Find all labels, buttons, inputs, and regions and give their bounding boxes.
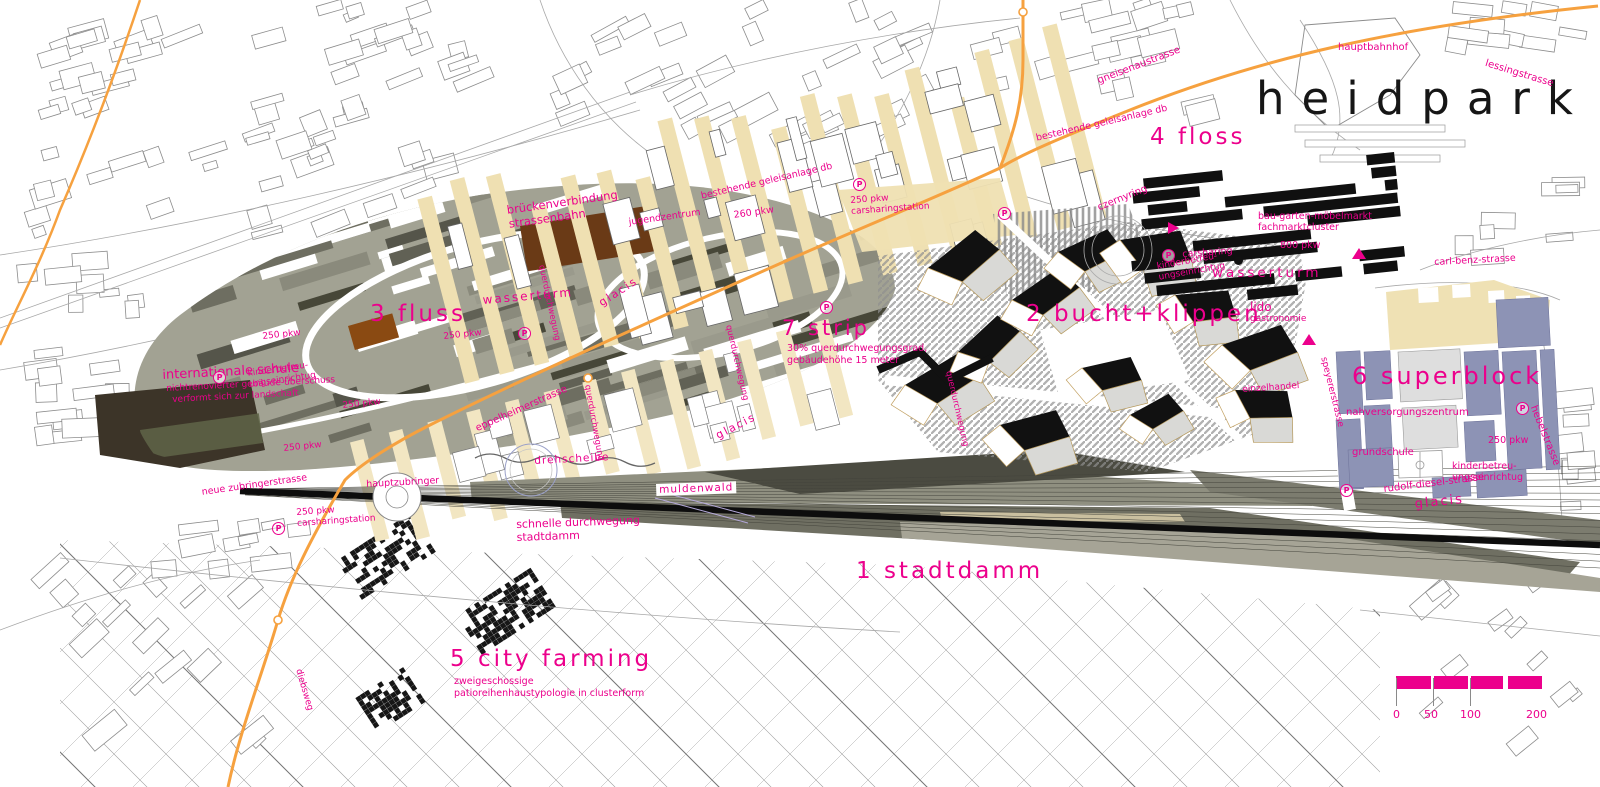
- zone-label-cityfarming: 5 city farming: [450, 646, 652, 673]
- place-label-wasserturm-right: wasserturm: [1212, 266, 1322, 282]
- baugarten-line2: fachmarktcluster: [1258, 222, 1372, 233]
- parking-icon-1: P: [213, 371, 226, 384]
- marker-triangle-1: [1168, 222, 1179, 234]
- place-label-lido: lido: [1250, 300, 1272, 314]
- zone-label-superblock: 6 superblock: [1352, 362, 1542, 390]
- heidpark-masterplan: heidpark 1 stadtdamm 2 bucht+klippen 3 f…: [0, 0, 1600, 787]
- place-label-hauptbahnhof: hauptbahnhof: [1338, 42, 1408, 54]
- scalebar-segment: [1508, 676, 1542, 689]
- place-label-nahversorgungszentrum: nahversorgungszentrum: [1346, 407, 1469, 419]
- scalebar-label-50: 50: [1424, 708, 1438, 721]
- parking-icon-carsharing: P: [1162, 249, 1175, 262]
- parking-label-800pkw: 800 pkw: [1280, 240, 1320, 251]
- scalebar: 0 50 100 200: [1396, 676, 1546, 722]
- cityfarming-sub2: patioreihenhaustypologie in clusterform: [454, 688, 644, 699]
- place-label-gastronomie: gastronomie: [1250, 314, 1306, 325]
- scalebar-label-0: 0: [1393, 708, 1400, 721]
- scalebar-segment: [1434, 676, 1468, 689]
- note-schnelle-durchwegung: schnelle durchwegungstadtdamm: [516, 515, 641, 545]
- scalebar-label-200: 200: [1526, 708, 1547, 721]
- marker-triangle-3: [1352, 248, 1366, 259]
- kinderbetreuung-line1: kinderbetreu-: [1452, 461, 1517, 472]
- parking-icon-5: P: [998, 207, 1011, 220]
- scalebar-segment: [1471, 676, 1503, 689]
- parking-icon-2: P: [518, 327, 531, 340]
- place-label-grundschule: grundschule: [1352, 447, 1414, 459]
- wasserturm-dot: [1234, 256, 1243, 265]
- scalebar-label-100: 100: [1460, 708, 1481, 721]
- scalebar-segment: [1396, 676, 1431, 689]
- scalebar-tick: [1470, 678, 1471, 706]
- marker-triangle-2: [1302, 334, 1316, 345]
- place-label-kinderbetreuung-superblock: kinderbetreu-ungseinrichtug: [1452, 461, 1523, 483]
- scalebar-tick: [1396, 678, 1397, 706]
- parking-icon-4: P: [820, 301, 833, 314]
- cityfarming-sub1: zweigeschossige: [454, 676, 534, 687]
- parking-icon-3: P: [853, 178, 866, 191]
- scalebar-tick: [1433, 678, 1434, 706]
- zone-label-floss: 4 floss: [1150, 124, 1245, 151]
- zone-label-fluss: 3 fluss: [370, 301, 466, 328]
- zone-label-bucht: 2 bucht+klippen: [1026, 301, 1262, 328]
- parking-icon-8: P: [1516, 402, 1529, 415]
- strip-sub2: gebäudehöhe 15 meter: [787, 355, 899, 366]
- parking-label-250pkw-superblock: 250 pkw: [1488, 435, 1528, 446]
- kinderbetreuung-line2: ungseinrichtug: [1452, 472, 1523, 483]
- strip-sub1: 30% querdurchwegungsgrad,: [787, 343, 927, 354]
- parking-icon-7: P: [1340, 484, 1353, 497]
- parking-icon-6: P: [272, 522, 285, 535]
- baugarten-line1: bau-garten-möbelmarkt: [1258, 211, 1372, 222]
- zone-label-strip: 7 strip: [782, 316, 870, 341]
- place-label-baugarten: bau-garten-möbelmarktfachmarktcluster: [1258, 211, 1372, 233]
- zone-label-stadtdamm: 1 stadtdamm: [856, 558, 1043, 585]
